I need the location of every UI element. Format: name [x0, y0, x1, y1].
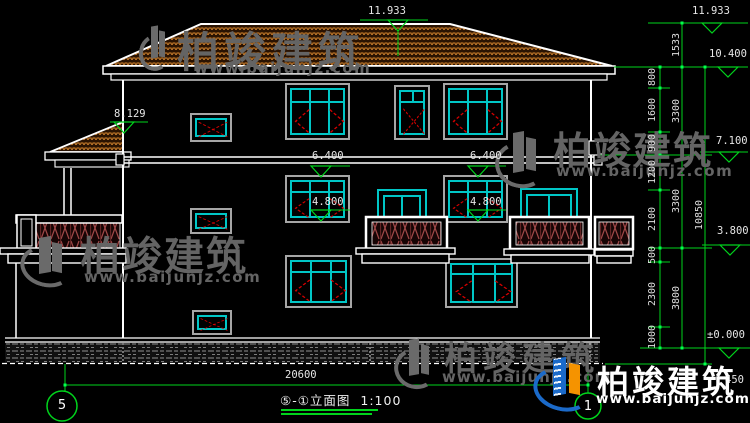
watermark-url: www.baijunjz.com: [556, 162, 733, 180]
dim-overall-height: 10850: [694, 195, 706, 235]
level-ridge-right: 11.933: [692, 5, 730, 17]
watermark-logo-icon: [139, 23, 175, 73]
dim-floor-3300b: 3300: [671, 181, 683, 221]
dim-plinth: 450: [725, 374, 744, 386]
window-3f-right: [443, 83, 508, 140]
cad-linework: [0, 0, 750, 423]
watermark-url: www.baijunjz.com: [442, 368, 611, 386]
level-win-head-left: 6.400: [312, 150, 344, 162]
level-ground: ±0.000: [707, 329, 745, 341]
watermark-logo-icon: [394, 336, 442, 392]
watermark-url: www.baijunjz.com: [84, 268, 261, 286]
window-3f-left: [285, 83, 350, 140]
axis-bubble-right: 1: [575, 399, 601, 414]
window-1f-left: [285, 255, 352, 308]
watermark-brand: 柏竣建筑: [444, 332, 600, 380]
dim-seg-500: 500: [647, 235, 659, 275]
watermark-url: www.baijunjz.com: [194, 59, 371, 77]
footer-logo-url: www.baijunjz.com: [596, 391, 750, 407]
balcony-door-center: [377, 189, 427, 252]
dim-seg-2100: 2100: [647, 199, 659, 239]
dim-floor-1533: 1533: [671, 25, 683, 65]
dim-overall-width: 20600: [285, 369, 317, 381]
footer-logo-brand: 柏竣建筑: [597, 357, 737, 403]
dim-seg-1000: 1000: [647, 317, 659, 357]
level-win-sill-right: 4.800: [470, 196, 502, 208]
watermark-brand: 柏竣建筑: [177, 19, 365, 80]
elevation-drawing-canvas: 11.933 11.933 10.400 8.129 7.100 3.800 ±…: [0, 0, 750, 423]
axis-bubble-left: 5: [47, 398, 77, 413]
watermark-logo-icon: [20, 234, 78, 290]
level-ridge-left: 11.933: [368, 5, 406, 17]
left-balcony: [0, 215, 126, 263]
dim-seg-2300: 2300: [647, 274, 659, 314]
level-floor3: 7.100: [716, 135, 748, 147]
dim-floor-3300a: 3300: [671, 91, 683, 131]
window-stair-bottom: [192, 310, 232, 335]
main-roof: [103, 24, 615, 80]
drawing-title-name: ⑤-①立面图: [280, 393, 350, 408]
wing-roof: [45, 122, 131, 167]
level-win-sill-left: 4.800: [312, 196, 344, 208]
balcony-door-right: [520, 188, 578, 250]
drawing-title: ⑤-①立面图 1:100: [280, 390, 401, 409]
window-3f-center: [394, 85, 430, 140]
level-win-head-right: 6.400: [470, 150, 502, 162]
window-stair-mid: [190, 208, 232, 234]
plinth: [2, 338, 603, 364]
level-eave: 10.400: [709, 48, 747, 60]
dim-seg-1200: 1200: [647, 152, 659, 192]
level-floor2: 3.800: [717, 225, 749, 237]
drawing-title-scale: 1:100: [360, 393, 401, 408]
window-1f-right: [445, 258, 518, 308]
watermark-brand: 柏竣建筑: [553, 120, 713, 175]
dim-floor-3800: 3800: [671, 278, 683, 318]
level-wing-roof: 8.129: [114, 108, 146, 120]
window-stair-top: [190, 113, 232, 142]
